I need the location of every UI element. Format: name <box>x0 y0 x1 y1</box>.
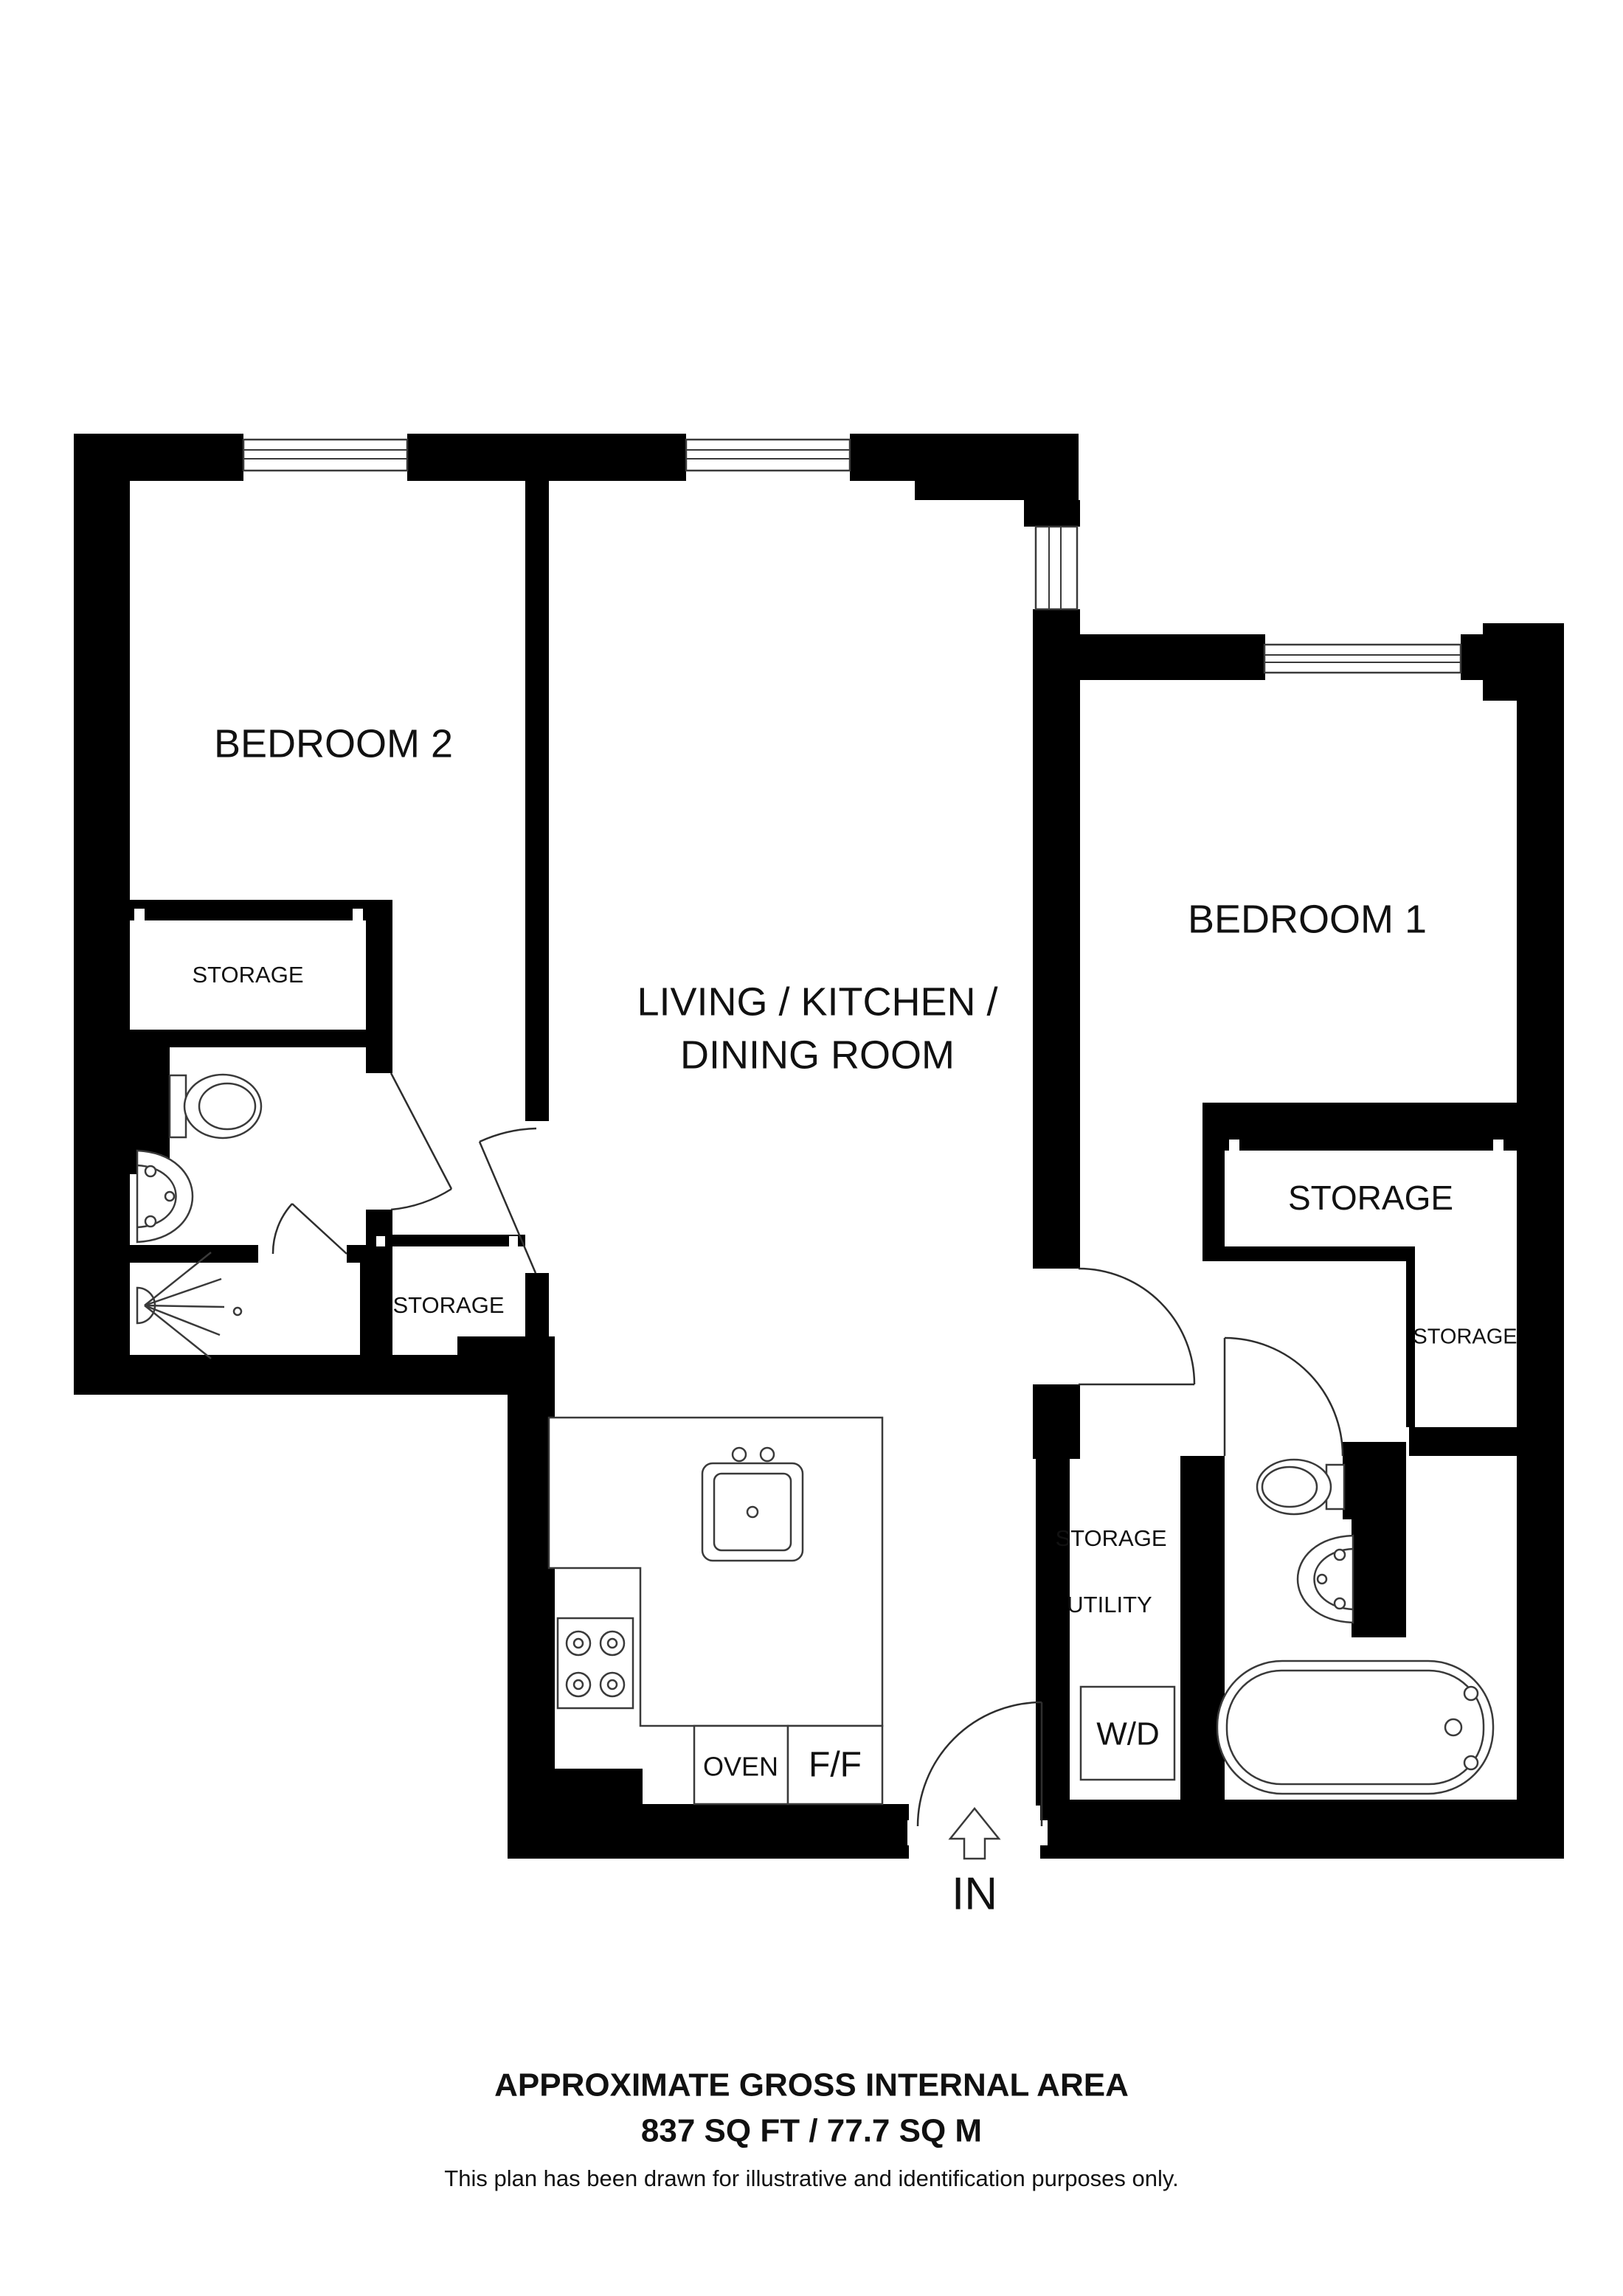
toilet-icon <box>1257 1460 1344 1514</box>
wall-segment <box>1202 1103 1517 1151</box>
wall-segment <box>407 434 686 481</box>
wall-segment <box>1409 1427 1517 1456</box>
living-label-line2: DINING ROOM <box>680 1033 955 1077</box>
storage-closet-label: STORAGE <box>1413 1325 1517 1349</box>
door-jamb-notch <box>509 1236 518 1246</box>
storage-bedroom2-label: STORAGE <box>192 962 303 988</box>
door-jamb-notch <box>1493 1140 1503 1151</box>
wall-segment <box>366 1235 525 1246</box>
wall-segment <box>1080 634 1265 680</box>
footer-area-value: 837 SQ FT / 77.7 SQ M <box>641 2113 982 2149</box>
footer: APPROXIMATE GROSS INTERNAL AREA 837 SQ F… <box>444 2067 1178 2192</box>
wall-segment <box>850 434 1079 481</box>
wall-segment <box>1343 1442 1406 1519</box>
door-jamb-notch <box>376 1236 385 1246</box>
floor-plan-page: BEDROOM 2 LIVING / KITCHEN / DINING ROOM… <box>0 0 1623 2296</box>
wall-segment <box>74 434 130 1395</box>
storage-shower-label: STORAGE <box>392 1292 504 1318</box>
wall-segment <box>74 1355 508 1395</box>
wall-segment <box>1202 1151 1225 1261</box>
wall-segment <box>360 1245 372 1355</box>
wall-segment <box>1202 1246 1415 1261</box>
footer-area-title: APPROXIMATE GROSS INTERNAL AREA <box>494 2067 1129 2103</box>
shower-room-door <box>273 1204 347 1254</box>
wall-segment <box>1483 623 1564 701</box>
wall-segment <box>1040 1800 1564 1859</box>
bathtub-icon <box>1217 1661 1493 1794</box>
entrance-arrow-icon <box>950 1808 999 1859</box>
basin-icon <box>137 1151 193 1242</box>
wall-segment <box>525 481 549 1121</box>
door-jamb-notch <box>134 909 145 920</box>
storage-utility-label: STORAGE <box>1055 1525 1166 1551</box>
shower-icon <box>137 1252 241 1359</box>
wall-segment <box>915 481 1079 500</box>
bedroom2-window <box>243 440 407 471</box>
wall-segment <box>1033 651 1080 1159</box>
hall-door <box>1079 1269 1194 1384</box>
living-room-window <box>686 440 850 471</box>
floor-plan: BEDROOM 2 LIVING / KITCHEN / DINING ROOM… <box>0 0 1623 2296</box>
kitchen-sink-icon <box>702 1448 803 1561</box>
bedroom1-label: BEDROOM 1 <box>1188 897 1427 941</box>
living-label-line1: LIVING / KITCHEN / <box>637 979 997 1024</box>
wall-segment <box>1024 500 1080 527</box>
washer-dryer-label: W/D <box>1096 1716 1160 1752</box>
bedroom1-window <box>1264 645 1461 673</box>
utility-label: UTILITY <box>1067 1592 1152 1617</box>
bedroom2-label: BEDROOM 2 <box>214 721 453 766</box>
hob-icon <box>558 1618 633 1708</box>
basin-icon <box>1298 1536 1353 1623</box>
wall-segment <box>130 1245 258 1263</box>
wall-segment <box>1033 609 1080 651</box>
fridge-freezer-label: F/F <box>809 1746 862 1785</box>
bathroom1-door <box>1225 1338 1343 1456</box>
toilet-icon <box>170 1075 261 1138</box>
wall-segment <box>124 900 392 920</box>
door-jamb-notch <box>353 909 363 920</box>
bathroom2-left-door <box>391 1073 451 1210</box>
wall-segment <box>366 920 392 1073</box>
side-narrow-window <box>1036 527 1077 609</box>
wall-segment <box>508 1769 643 1859</box>
wall-segment <box>1517 701 1564 1859</box>
wall-segment <box>1033 1159 1080 1269</box>
bedroom2-corridor-door <box>480 1128 536 1273</box>
storage-bedroom1-label: STORAGE <box>1288 1179 1453 1217</box>
entrance-door <box>918 1702 1042 1826</box>
footer-disclaimer: This plan has been drawn for illustrativ… <box>444 2165 1178 2191</box>
wall-segment <box>508 1336 555 1769</box>
wall-segment <box>1180 1456 1225 1800</box>
oven-label: OVEN <box>703 1752 778 1782</box>
wall-segment <box>525 1273 549 1355</box>
door-jamb-notch <box>1229 1140 1239 1151</box>
sink-boxing-wall <box>1352 1519 1406 1637</box>
entrance-label: IN <box>952 1868 997 1919</box>
wall-segment <box>1033 1384 1080 1459</box>
